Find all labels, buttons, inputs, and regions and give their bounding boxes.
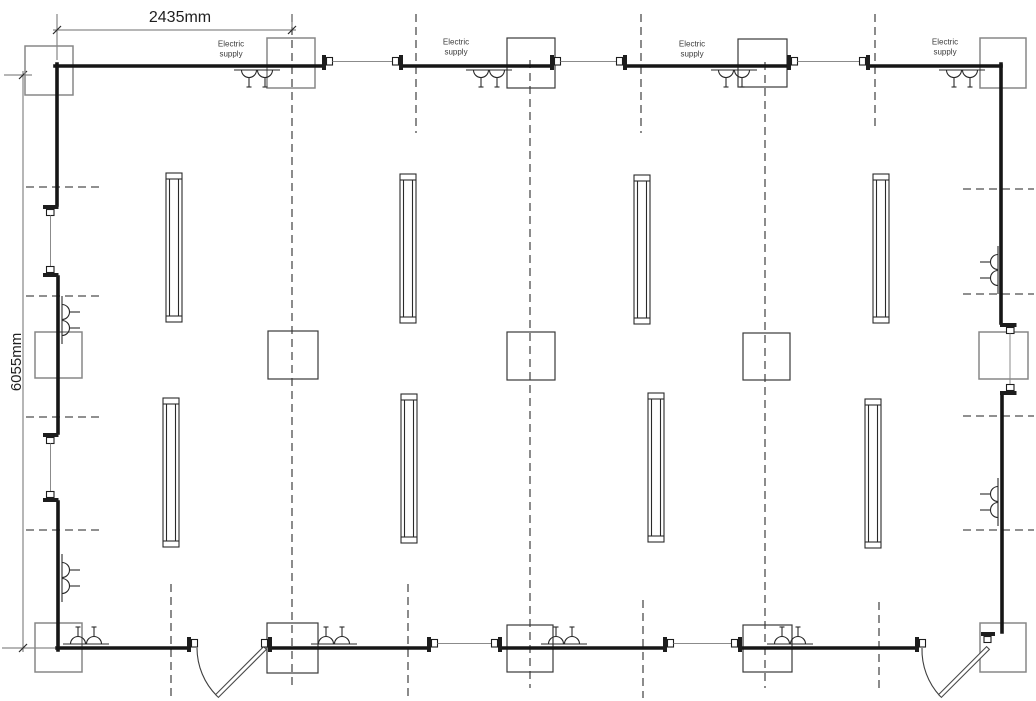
wall-light-dome (71, 637, 86, 645)
wall-light-dome (87, 637, 102, 645)
floor-plan-drawing: ElectricsupplyElectricsupplyElectricsupp… (0, 0, 1036, 701)
wall-light-dome (735, 70, 750, 78)
coupler-bar (550, 55, 554, 70)
coupler-plug (47, 267, 55, 273)
coupler-bar (738, 637, 742, 652)
coupler-bar (43, 205, 59, 209)
junction-box (268, 331, 318, 379)
coupler-plug (984, 637, 991, 643)
wall-light-dome (991, 271, 998, 286)
plan-underlay-layer (2, 14, 1034, 700)
tube-luminaire-body (634, 175, 650, 324)
junction-box (738, 39, 787, 87)
wall-light-pair-top (234, 70, 280, 87)
coupler-plug (1007, 328, 1015, 334)
wall-light-pair-top (466, 70, 512, 87)
wall-light-pair-left (62, 554, 80, 602)
junction-box (267, 38, 315, 88)
coupler-plug (432, 640, 438, 648)
coupler-bar (623, 55, 627, 70)
coupler-plug (262, 640, 268, 648)
wall-light-dome (963, 70, 978, 78)
wall-light-dome (490, 70, 505, 78)
coupler-bar (663, 637, 667, 652)
cable-coupler (43, 433, 59, 502)
coupler-bar (399, 55, 403, 70)
coupler-bar (427, 637, 431, 652)
tube-luminaire (634, 175, 650, 324)
tube-luminaire-body (400, 174, 416, 323)
coupler-plug (860, 58, 866, 66)
cable-coupler (663, 637, 742, 652)
wall-light-dome (62, 563, 70, 578)
wall-light-dome (62, 321, 70, 336)
electric-supply-label: Electricsupply (218, 40, 244, 59)
cable-coupler (915, 637, 926, 652)
coupler-bar (187, 637, 191, 652)
wall-light-dome (62, 305, 70, 320)
wall-light-dome (947, 70, 962, 78)
junction-box (507, 38, 555, 88)
electric-supply-label: Electricsupply (679, 40, 705, 59)
wall-light-dome (565, 637, 580, 645)
wall-light-dome (991, 503, 998, 518)
coupler-plug (920, 640, 926, 648)
wall-light-dome (991, 487, 998, 502)
coupler-plug (668, 640, 674, 648)
wall-light-pair-right (980, 478, 998, 526)
junction-box (743, 333, 790, 380)
wall-light-pair-top (711, 70, 757, 87)
wall-light-dome (474, 70, 489, 78)
coupler-bar (43, 498, 59, 502)
coupler-bar (1000, 323, 1017, 327)
coupler-plug (47, 438, 55, 444)
cable-coupler (787, 55, 870, 70)
tube-luminaire (873, 174, 889, 323)
tube-luminaire-body (865, 399, 881, 548)
coupler-bar (1000, 391, 1017, 395)
wall-light-dome (719, 70, 734, 78)
coupler-plug (327, 58, 333, 66)
wall-light-dome (791, 637, 806, 645)
coupler-plug (492, 640, 498, 648)
cable-coupler (427, 637, 502, 652)
wall-light-dome (775, 637, 790, 645)
tube-luminaire (865, 399, 881, 548)
junction-box (507, 332, 555, 380)
wall-light-dome (549, 637, 564, 645)
coupler-bar (787, 55, 791, 70)
coupler-bar (322, 55, 326, 70)
tube-luminaire-body (648, 393, 664, 542)
electric-supply-label: Electricsupply (443, 38, 469, 57)
wall-light-pair-bottom (541, 627, 587, 644)
wall-light-pair-right (980, 246, 998, 294)
wall-light-dome (62, 579, 70, 594)
tube-luminaire (400, 174, 416, 323)
coupler-bar (981, 632, 995, 636)
tube-luminaire (163, 398, 179, 547)
wall-light-pair-left (62, 296, 80, 344)
tube-luminaire (166, 173, 182, 322)
coupler-plug (47, 210, 55, 216)
wall-light-pair-top (939, 70, 985, 87)
wall-light-dome (335, 637, 350, 645)
cable-coupler (981, 632, 995, 643)
wall-light-dome (991, 255, 998, 270)
cable-coupler (43, 205, 59, 277)
height-dimension-label: 6055mm (8, 333, 25, 391)
door-swing-arc (922, 648, 940, 696)
cable-coupler (550, 55, 627, 70)
width-dimension-label: 2435mm (149, 9, 211, 26)
wall-light-dome (319, 637, 334, 645)
door-leaf (216, 647, 267, 698)
junction-box (25, 46, 73, 95)
cable-coupler (322, 55, 403, 70)
wall-light-pair-bottom (63, 627, 109, 644)
tube-luminaire (401, 394, 417, 543)
tube-luminaire-body (166, 173, 182, 322)
tube-luminaire-body (401, 394, 417, 543)
coupler-plug (732, 640, 738, 648)
electric-supply-label: Electricsupply (932, 38, 958, 57)
wall-light-dome (258, 70, 273, 78)
cable-coupler (187, 637, 272, 652)
coupler-bar (915, 637, 919, 652)
coupler-bar (43, 273, 59, 277)
junction-box (980, 38, 1026, 88)
floor-plan-page: ElectricsupplyElectricsupplyElectricsupp… (0, 0, 1036, 701)
door-swing-arc (197, 648, 217, 696)
wall-light-dome (242, 70, 257, 78)
coupler-bar (866, 55, 870, 70)
coupler-plug (393, 58, 399, 66)
tube-luminaire-body (163, 398, 179, 547)
wall-light-pair-bottom (767, 627, 813, 644)
tube-luminaire (648, 393, 664, 542)
cable-coupler (1000, 323, 1017, 395)
coupler-bar (268, 637, 272, 652)
junction-box (979, 332, 1028, 379)
door-swing (197, 647, 266, 698)
coupler-plug (617, 58, 623, 66)
coupler-plug (555, 58, 561, 66)
tube-luminaire-body (873, 174, 889, 323)
coupler-bar (43, 433, 59, 437)
coupler-plug (192, 640, 198, 648)
coupler-plug (1007, 385, 1015, 391)
coupler-bar (498, 637, 502, 652)
coupler-plug (792, 58, 798, 66)
coupler-plug (47, 492, 55, 498)
